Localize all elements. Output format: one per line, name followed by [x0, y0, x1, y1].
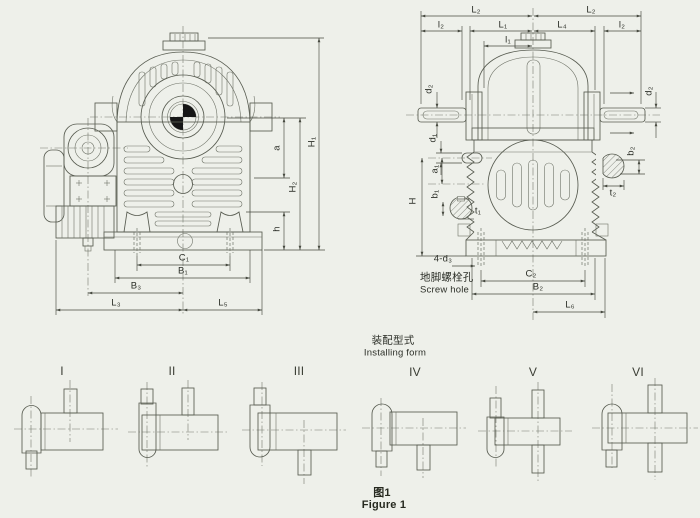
dim-label-c1: C₁	[179, 253, 189, 264]
dim-label-4-d3: 4-d₃	[434, 254, 452, 265]
installing-form-label-iv: IV	[409, 365, 421, 379]
dim-label-l1-small: l₁	[505, 35, 511, 46]
installing-form-label-iii: III	[294, 364, 305, 378]
dim-label-l5: L₅	[218, 298, 228, 309]
front-view-dimensions	[56, 38, 325, 315]
top-cap	[163, 33, 205, 50]
dim-label-b1-key: b₁	[430, 190, 441, 199]
technical-drawing	[0, 0, 700, 518]
figure-page: H₁ H₂ a h C₁ B₁ B₃ L₃ L₅ L₂ L₂ l₂ L₁ L₄ …	[0, 0, 700, 518]
dim-label-l3: L₃	[111, 298, 121, 309]
installing-form-title-cn: 装配型式	[372, 333, 415, 348]
dim-label-l2-right-upper: L₂	[586, 5, 595, 16]
screw-hole-label-en: Screw hole	[420, 285, 469, 296]
installing-form-label-ii: II	[168, 364, 175, 378]
installing-form-v-drawing	[478, 382, 572, 482]
dim-label-b1-front: B₁	[178, 266, 188, 277]
dim-label-a1: a₁	[430, 165, 441, 174]
dim-label-l1-cap: L₁	[499, 20, 508, 31]
installing-form-iv-drawing	[362, 398, 466, 478]
dim-label-h-cap: H	[408, 197, 419, 204]
dim-label-l4: L₄	[557, 20, 567, 31]
installing-form-ii-drawing	[128, 380, 228, 468]
dim-label-h1: H₁	[307, 137, 318, 147]
dim-label-l6: L₆	[565, 300, 575, 311]
dim-label-a: a	[272, 145, 283, 150]
dim-label-b3: B₃	[131, 281, 142, 292]
installing-form-iii-drawing	[242, 382, 346, 484]
dim-label-d2-right: d₂	[644, 86, 655, 95]
dim-label-l2-small-right: l₂	[619, 20, 625, 31]
installing-form-title-en: Installing form	[364, 348, 426, 359]
dim-label-b2: b₂	[626, 146, 637, 155]
output-shaft-section	[596, 152, 624, 180]
installing-form-label-v: V	[529, 365, 537, 379]
figure-caption-en: Figure 1	[362, 499, 406, 511]
installing-form-i-drawing	[14, 380, 118, 478]
installing-form-label-vi: VI	[632, 365, 644, 379]
dim-label-c2: C₂	[526, 269, 537, 280]
installing-form-diagrams	[14, 378, 698, 484]
dim-label-l2-left-upper: L₂	[471, 5, 480, 16]
dim-label-l2-small-left: l₂	[438, 20, 444, 31]
figure-caption-cn: 图1	[373, 484, 391, 500]
screw-hole-label-cn: 地脚螺栓孔	[420, 270, 474, 285]
dim-label-h2: H₂	[288, 182, 299, 193]
dim-label-h: h	[272, 226, 283, 231]
dim-label-t2: t₂	[610, 188, 617, 199]
installing-form-vi-drawing	[592, 378, 698, 480]
dim-label-d1: d₁	[428, 134, 439, 143]
dim-label-t1: t₁	[475, 206, 481, 217]
dim-label-d2-left: d₂	[424, 84, 435, 93]
installing-form-label-i: I	[60, 364, 64, 378]
dim-label-b2-base: B₂	[533, 282, 543, 293]
